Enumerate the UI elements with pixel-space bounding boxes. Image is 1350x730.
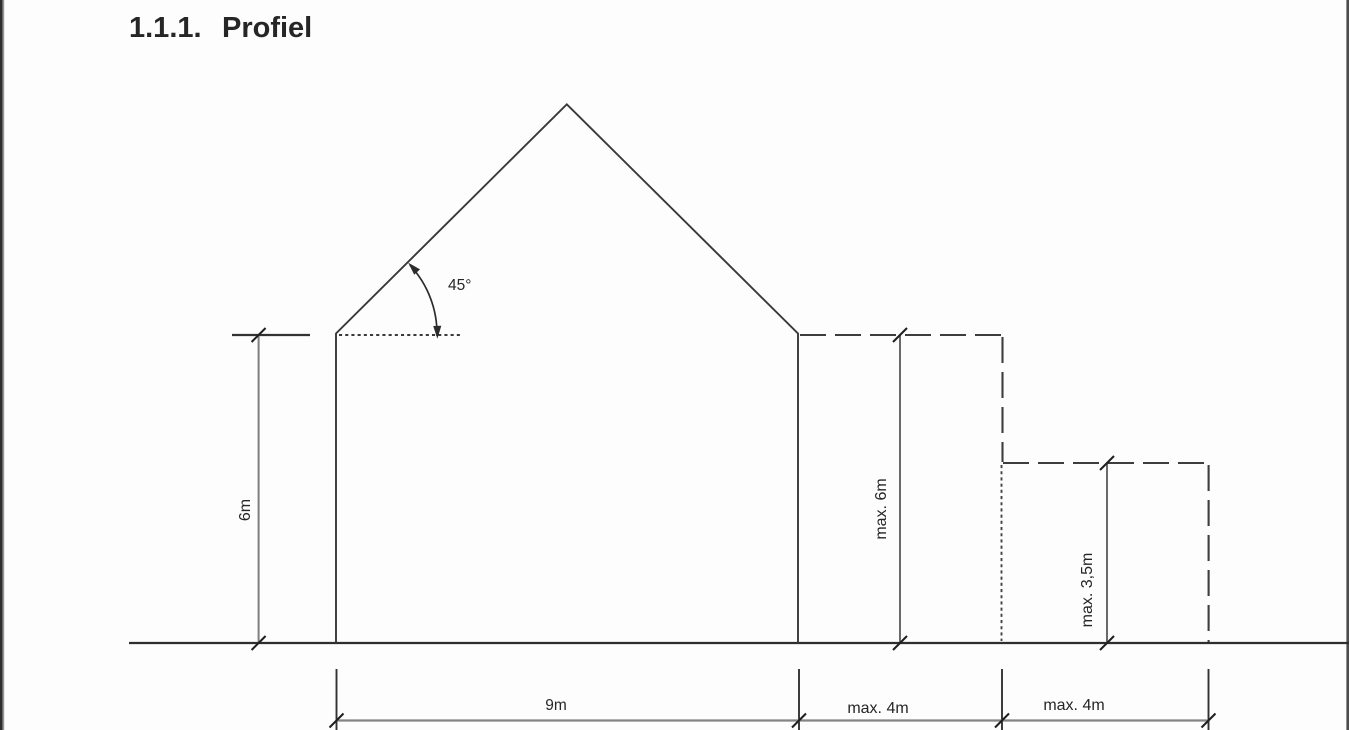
svg-text:9m: 9m — [545, 697, 567, 714]
svg-text:max. 3,5m: max. 3,5m — [1079, 553, 1096, 628]
svg-text:max. 4m: max. 4m — [1043, 697, 1104, 714]
svg-text:45°: 45° — [448, 277, 471, 294]
svg-text:max. 6m: max. 6m — [873, 478, 890, 539]
svg-text:max. 4m: max. 4m — [847, 700, 908, 717]
svg-text:Profiel: Profiel — [222, 12, 312, 44]
svg-text:1.1.1.: 1.1.1. — [129, 12, 202, 44]
svg-text:6m: 6m — [237, 499, 254, 521]
